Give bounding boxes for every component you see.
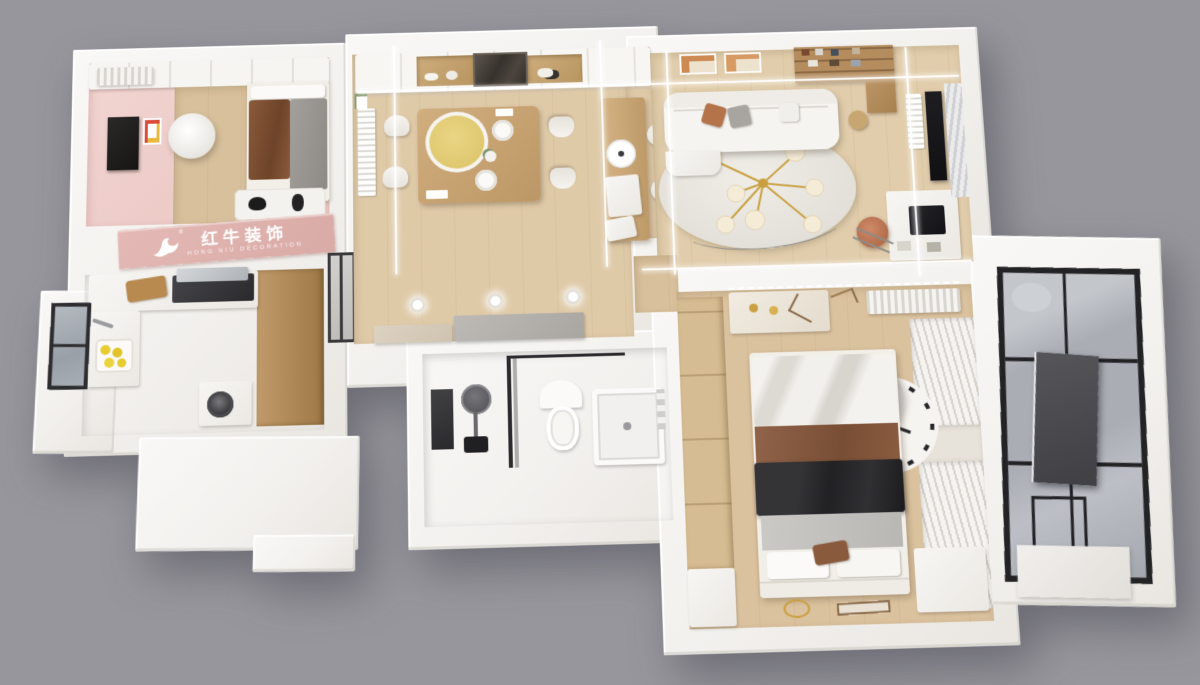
white-drape xyxy=(751,353,898,429)
air-conditioner xyxy=(97,66,154,85)
toilet-seat xyxy=(546,406,579,451)
plate-1 xyxy=(492,120,514,141)
dining-radiator xyxy=(357,108,375,196)
door-rail xyxy=(340,255,343,339)
bar-island xyxy=(600,97,650,241)
gold-candles xyxy=(749,304,758,313)
basin-stand xyxy=(473,412,478,438)
tall-wood-cabinets xyxy=(257,269,325,427)
lemon-4 xyxy=(117,358,126,367)
range-hood xyxy=(176,267,248,283)
single-bed xyxy=(246,81,329,203)
kids-bedroom xyxy=(86,57,330,226)
glass-partition-rail xyxy=(511,352,625,358)
art-frame-1 xyxy=(679,53,717,75)
wood-niche-left xyxy=(416,55,473,86)
dark-glass-display-cabinet xyxy=(473,52,528,87)
washing-machine xyxy=(199,381,252,426)
bathroom xyxy=(422,347,673,527)
paper-roll-core xyxy=(618,151,624,157)
sliding-glass-door xyxy=(328,252,356,343)
bath-wall-fixtures xyxy=(656,389,666,429)
master-doorway-threshold xyxy=(634,255,680,313)
lemon-2 xyxy=(112,348,122,358)
lemon-tray xyxy=(95,338,134,373)
desk-tv xyxy=(107,117,139,171)
plush-toy-2 xyxy=(292,194,304,212)
gray-quilt xyxy=(290,98,327,190)
dishes xyxy=(425,73,439,81)
apartment-plan: ® 红牛装饰 HONG NIU DECORATION xyxy=(12,0,1200,684)
master-bed xyxy=(749,349,910,598)
round-basin xyxy=(461,384,492,415)
dining-wall-art xyxy=(354,93,367,108)
dresser-deco xyxy=(788,293,820,322)
glass-reflection xyxy=(1011,282,1052,312)
scene-3d-floorplan: ® 红牛装饰 HONG NIU DECORATION xyxy=(0,0,1200,660)
bull-logo-icon: ® xyxy=(150,233,181,259)
desk-monitor xyxy=(909,205,946,235)
books xyxy=(801,49,809,56)
dark-gray-panel xyxy=(1034,352,1099,486)
master-wardrobe-lower xyxy=(687,568,737,627)
washer-door xyxy=(207,391,233,418)
throw-pillow-brown xyxy=(701,102,728,128)
shower-drain xyxy=(623,422,631,430)
master-ac-vent xyxy=(866,288,961,314)
wall-slab-entry-step xyxy=(253,534,356,572)
kitchen-window xyxy=(47,303,91,390)
white-sofa xyxy=(663,88,840,153)
menu-card xyxy=(495,108,513,116)
bed-pillow xyxy=(251,84,325,99)
registered-mark: ® xyxy=(179,229,184,235)
bar-white-cube xyxy=(605,174,643,217)
dishes-2 xyxy=(446,70,458,80)
art-frame-2 xyxy=(724,52,762,74)
dishes-3 xyxy=(537,68,553,78)
paper-roll xyxy=(606,139,636,168)
shower-base xyxy=(592,387,665,465)
lemon-3 xyxy=(104,358,114,368)
dining-chair-1 xyxy=(384,115,410,136)
plate-2 xyxy=(475,169,497,191)
sofa-chaise xyxy=(665,150,721,176)
desk-clutter xyxy=(897,241,911,251)
work-desk xyxy=(886,189,962,260)
balcony-white-ledge xyxy=(1017,545,1131,598)
sofa-seat-seam xyxy=(674,106,828,112)
bedroom-bench xyxy=(914,546,990,612)
menu-card-2 xyxy=(426,190,448,199)
flower-vase xyxy=(485,150,497,162)
glass-partition xyxy=(507,356,513,468)
plush-toy-1 xyxy=(248,197,266,211)
kitchen xyxy=(82,269,325,437)
wood-bookshelf xyxy=(794,45,895,83)
gray-cabinet xyxy=(454,312,585,341)
throw-pillow-white xyxy=(779,103,800,122)
master-dresser xyxy=(729,290,831,334)
wall-poster xyxy=(143,118,162,145)
bar-front-panel xyxy=(604,215,638,242)
black-fixture xyxy=(464,436,489,453)
bathroom-dark-mirror xyxy=(431,389,454,450)
dining-chair-2 xyxy=(382,166,408,188)
corner-shelf xyxy=(866,80,897,113)
wood-niche-right xyxy=(527,54,582,83)
beige-cabinet xyxy=(374,324,452,344)
toilet-tank xyxy=(539,379,582,408)
lemon-1 xyxy=(100,345,110,355)
balcony-glass-wall xyxy=(997,267,1153,584)
black-blanket xyxy=(754,459,905,516)
brown-blanket xyxy=(249,99,290,180)
throw-pillow-gray xyxy=(727,104,753,128)
window-mullion xyxy=(53,344,85,347)
dining-table xyxy=(417,106,541,204)
books-2 xyxy=(808,60,818,67)
